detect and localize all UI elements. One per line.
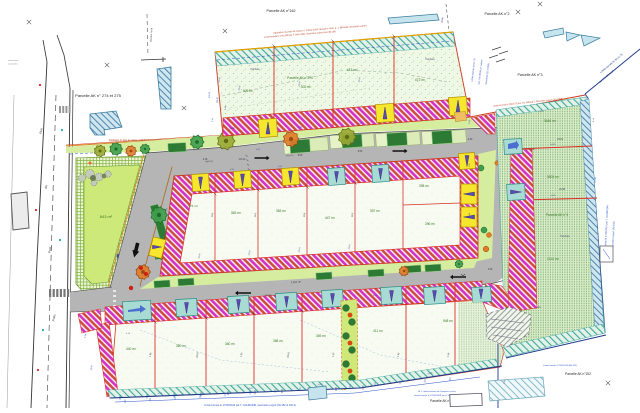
svg-text:948 m²: 948 m²	[443, 319, 454, 323]
svg-text:24.46: 24.46	[559, 189, 565, 191]
svg-text:Parcelle AK n°4: Parcelle AK n°4	[546, 213, 568, 217]
svg-text:-18.13-: -18.13-	[238, 159, 246, 161]
svg-text:396 m²: 396 m²	[425, 222, 436, 226]
svg-text:9.50: 9.50	[298, 155, 303, 157]
svg-text:405 m²: 405 m²	[243, 89, 254, 93]
svg-text:843 m²: 843 m²	[100, 214, 113, 219]
svg-text:Limite bornée le 17/06/2014 pa: Limite bornée le 17/06/2014 par T. GOURA…	[204, 404, 296, 407]
svg-text:Parcelle AK n°276: Parcelle AK n°276	[287, 76, 313, 80]
svg-text:Parcelle AK n°3: Parcelle AK n°3	[517, 73, 542, 77]
svg-text:3646 m²: 3646 m²	[544, 119, 557, 123]
svg-text:chemin rural: chemin rural	[149, 27, 154, 42]
svg-text:Parcelle AK n° 274 et 275: Parcelle AK n° 274 et 275	[75, 93, 121, 98]
svg-text:368 m²: 368 m²	[273, 339, 284, 343]
svg-text:4.30: 4.30	[468, 139, 473, 141]
svg-text:363 m²: 363 m²	[231, 211, 242, 215]
svg-text:-18.01-: -18.01-	[264, 295, 272, 297]
svg-text:576 m²: 576 m²	[188, 204, 198, 208]
svg-text:M. 1 redressement de l'emprise: M. 1 redressement de l'emprise conclu	[418, 390, 456, 393]
svg-text:2 401 m²: 2 401 m²	[291, 280, 302, 285]
svg-text:Héphaïa: Héphaïa	[560, 235, 570, 238]
svg-text:360 m²: 360 m²	[225, 342, 236, 346]
svg-text:397 m²: 397 m²	[370, 209, 381, 213]
svg-text:limite: limite	[441, 16, 445, 22]
svg-text:1114 m²: 1114 m²	[547, 257, 560, 261]
svg-text:411 m²: 411 m²	[373, 329, 384, 333]
svg-text:398 m²: 398 m²	[419, 184, 430, 188]
svg-text:4.36: 4.36	[488, 269, 493, 271]
svg-text:440 m²: 440 m²	[126, 347, 137, 351]
svg-text:Héphaïa: Héphaïa	[425, 58, 435, 61]
svg-text:57.46: 57.46	[595, 176, 597, 182]
svg-text:24.43: 24.43	[208, 91, 212, 98]
svg-text:Parcelle AK n°2: Parcelle AK n°2	[484, 12, 509, 16]
svg-text:447 m²: 447 m²	[325, 216, 336, 220]
svg-text:Limite bornée 17/06/2014 (AV.1: Limite bornée 17/06/2014 (AV.152)	[543, 364, 577, 367]
svg-text:zone haies: zone haies	[8, 60, 19, 62]
svg-text:existantes: existantes	[8, 63, 19, 66]
svg-text:Héphaïa: Héphaïa	[250, 68, 260, 71]
svg-text:39.10: 39.10	[216, 96, 220, 103]
svg-text:Parcelle AK n°162: Parcelle AK n°162	[266, 9, 295, 13]
svg-text:-4.63-: -4.63-	[157, 393, 163, 395]
svg-text:369 m²: 369 m²	[316, 334, 327, 338]
svg-text:413 m²: 413 m²	[347, 68, 358, 72]
svg-text:Parcelle AK n°152: Parcelle AK n°152	[565, 372, 591, 376]
svg-text:472 m²: 472 m²	[415, 78, 426, 82]
svg-text:3603 m²: 3603 m²	[547, 175, 560, 179]
svg-text:383 m²: 383 m²	[276, 209, 287, 213]
svg-text:402 m²: 402 m²	[301, 85, 312, 89]
svg-text:4.18: 4.18	[203, 159, 208, 161]
svg-text:23.01: 23.01	[557, 139, 563, 141]
svg-text:360 m²: 360 m²	[176, 344, 187, 348]
svg-text:9.50: 9.50	[358, 151, 363, 153]
